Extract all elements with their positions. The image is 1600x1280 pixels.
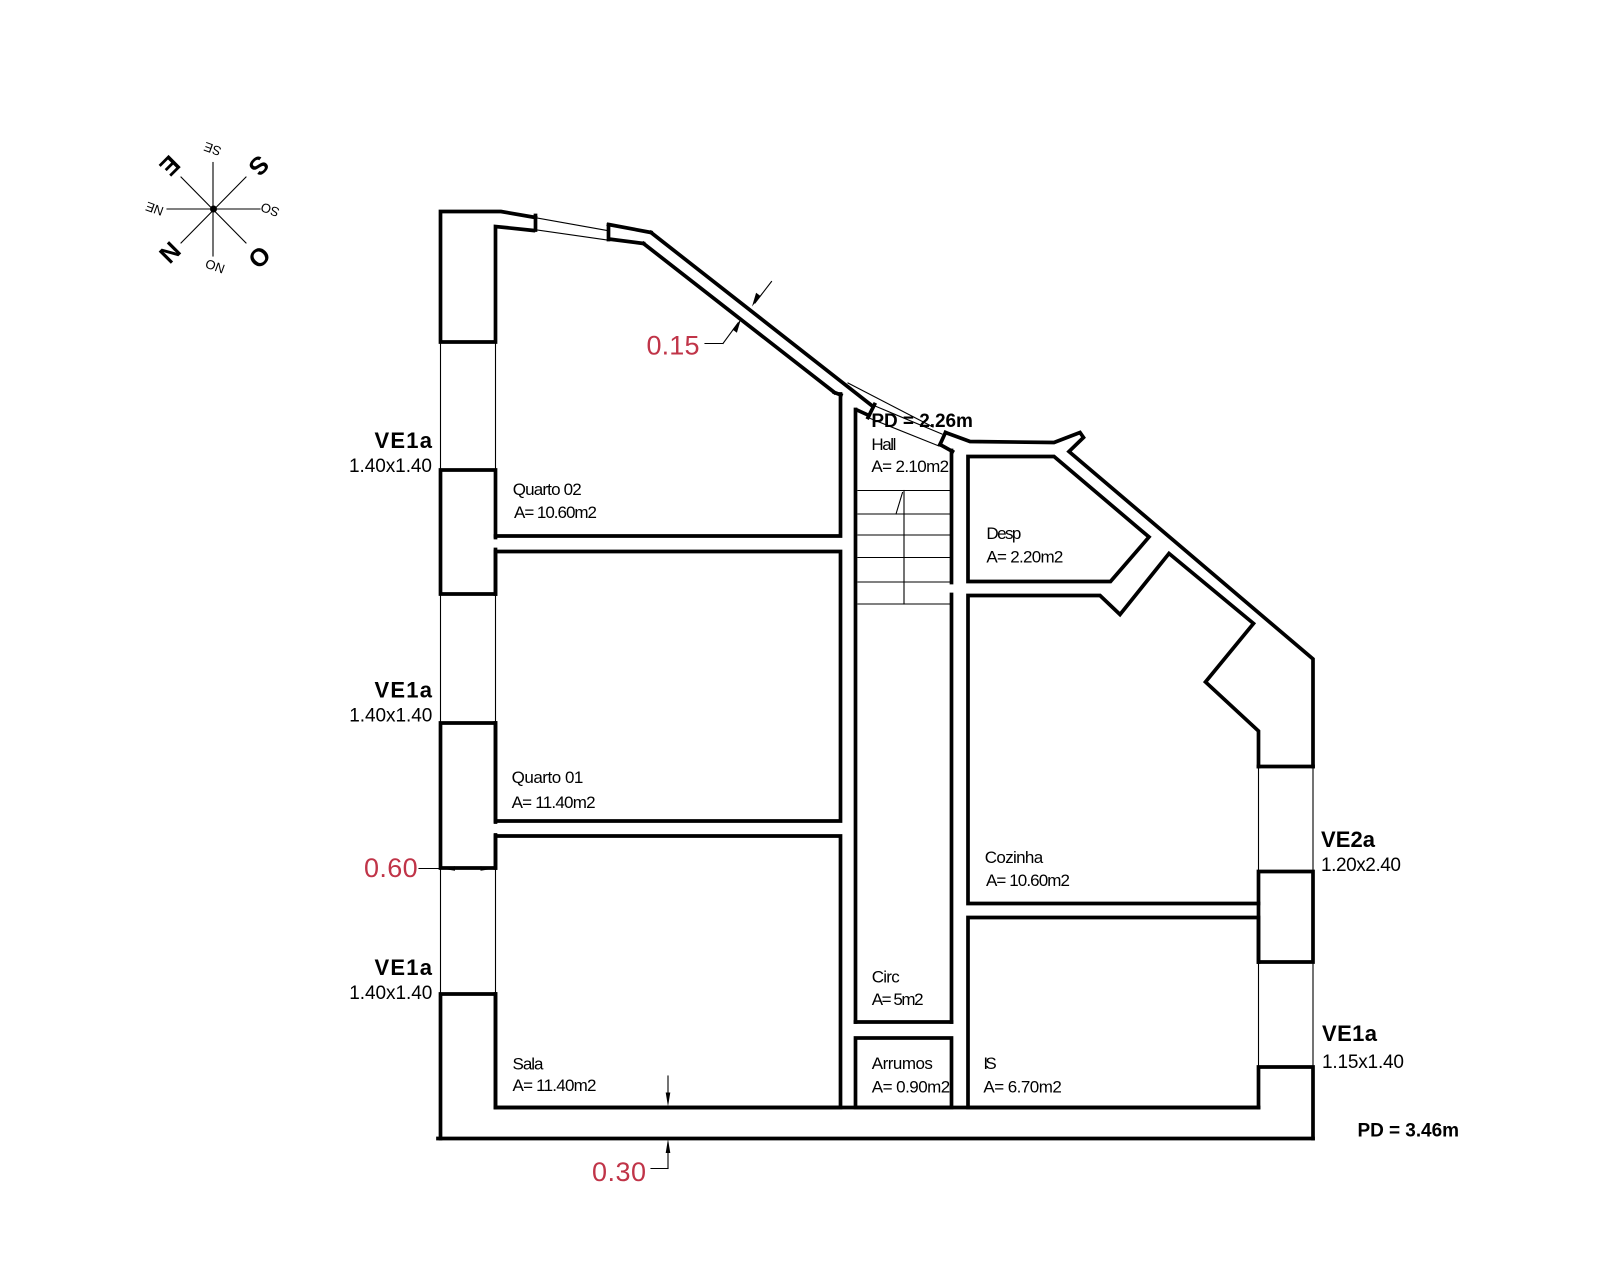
svg-text:Hall: Hall	[871, 435, 896, 454]
svg-text:A= 5m2: A= 5m2	[872, 990, 924, 1009]
svg-text:Desp: Desp	[986, 524, 1021, 543]
svg-text:1.40x1.40: 1.40x1.40	[349, 456, 432, 477]
svg-text:A= 0.90m2: A= 0.90m2	[872, 1078, 950, 1097]
svg-text:1.15x1.40: 1.15x1.40	[1322, 1052, 1404, 1073]
svg-text:PD = 2.26m: PD = 2.26m	[871, 411, 973, 432]
svg-text:Sala: Sala	[513, 1055, 545, 1074]
svg-text:Quarto 02: Quarto 02	[513, 480, 582, 499]
svg-text:0.30: 0.30	[592, 1157, 646, 1187]
svg-text:IS: IS	[983, 1054, 996, 1073]
svg-text:VE1a: VE1a	[375, 678, 433, 703]
svg-text:Arrumos: Arrumos	[872, 1054, 933, 1073]
svg-text:A= 6.70m2: A= 6.70m2	[983, 1078, 1061, 1097]
svg-text:VE2a: VE2a	[1321, 827, 1376, 852]
svg-text:A= 2.20m2: A= 2.20m2	[986, 548, 1063, 567]
svg-text:0.15: 0.15	[647, 331, 700, 361]
svg-text:1.40x1.40: 1.40x1.40	[349, 983, 432, 1004]
svg-text:0.60: 0.60	[364, 853, 418, 883]
svg-text:Cozinha: Cozinha	[985, 848, 1044, 867]
svg-text:A= 10.60m2: A= 10.60m2	[514, 503, 597, 522]
svg-text:VE1a: VE1a	[375, 955, 433, 980]
svg-text:A= 11.40m2: A= 11.40m2	[512, 793, 596, 812]
svg-text:1.20x2.40: 1.20x2.40	[1321, 855, 1401, 876]
svg-text:Quarto 01: Quarto 01	[512, 768, 584, 787]
svg-text:A= 10.60m2: A= 10.60m2	[986, 871, 1070, 890]
svg-text:A= 11.40m2: A= 11.40m2	[513, 1076, 597, 1095]
svg-text:Circ: Circ	[872, 967, 900, 986]
svg-text:A= 2.10m2: A= 2.10m2	[871, 457, 949, 476]
svg-text:VE1a: VE1a	[1322, 1021, 1378, 1046]
svg-text:VE1a: VE1a	[375, 428, 433, 453]
svg-text:PD = 3.46m: PD = 3.46m	[1358, 1121, 1460, 1142]
svg-text:1.40x1.40: 1.40x1.40	[349, 705, 432, 726]
